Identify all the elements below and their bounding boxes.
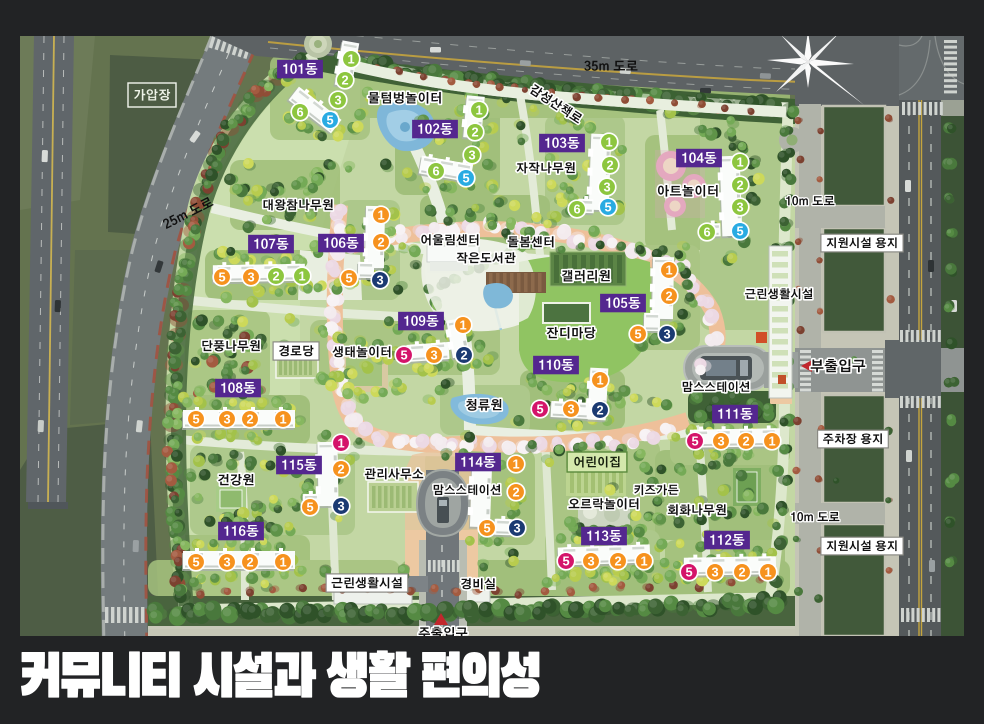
svg-text:3: 3 bbox=[513, 520, 520, 535]
svg-text:3: 3 bbox=[376, 272, 383, 287]
svg-text:5: 5 bbox=[536, 401, 543, 416]
svg-text:3: 3 bbox=[247, 269, 254, 284]
svg-text:2: 2 bbox=[272, 268, 279, 283]
svg-text:5: 5 bbox=[604, 199, 611, 214]
svg-text:2: 2 bbox=[606, 157, 613, 172]
svg-text:3: 3 bbox=[337, 498, 344, 513]
svg-text:5: 5 bbox=[562, 553, 569, 568]
svg-text:5: 5 bbox=[691, 433, 698, 448]
svg-text:5: 5 bbox=[462, 170, 469, 185]
svg-text:3: 3 bbox=[663, 326, 670, 341]
svg-text:1: 1 bbox=[736, 154, 743, 169]
svg-text:2: 2 bbox=[736, 177, 743, 192]
svg-text:2: 2 bbox=[665, 288, 672, 303]
svg-text:2: 2 bbox=[246, 554, 253, 569]
svg-text:2: 2 bbox=[341, 72, 348, 87]
svg-text:3: 3 bbox=[223, 411, 230, 426]
svg-text:1: 1 bbox=[665, 262, 672, 277]
svg-text:6: 6 bbox=[573, 201, 580, 216]
svg-text:5: 5 bbox=[736, 223, 743, 238]
svg-text:2: 2 bbox=[512, 484, 519, 499]
svg-text:3: 3 bbox=[567, 401, 574, 416]
svg-text:5: 5 bbox=[345, 270, 352, 285]
svg-text:1: 1 bbox=[279, 411, 286, 426]
svg-text:5: 5 bbox=[192, 411, 199, 426]
svg-text:2: 2 bbox=[377, 234, 384, 249]
svg-text:2: 2 bbox=[471, 124, 478, 139]
svg-text:3: 3 bbox=[603, 179, 610, 194]
svg-text:1: 1 bbox=[605, 134, 612, 149]
svg-text:1: 1 bbox=[377, 207, 384, 222]
svg-text:1: 1 bbox=[459, 317, 466, 332]
svg-text:5: 5 bbox=[685, 564, 692, 579]
svg-text:2: 2 bbox=[738, 564, 745, 579]
svg-text:5: 5 bbox=[326, 112, 333, 127]
svg-text:3: 3 bbox=[717, 433, 724, 448]
svg-text:2: 2 bbox=[596, 402, 603, 417]
svg-text:3: 3 bbox=[587, 553, 594, 568]
svg-text:1: 1 bbox=[279, 554, 286, 569]
svg-text:6: 6 bbox=[703, 224, 710, 239]
svg-text:1: 1 bbox=[298, 268, 305, 283]
svg-text:5: 5 bbox=[306, 499, 313, 514]
svg-text:3: 3 bbox=[430, 347, 437, 362]
svg-text:2: 2 bbox=[337, 461, 344, 476]
svg-text:6: 6 bbox=[432, 163, 439, 178]
svg-text:1: 1 bbox=[768, 433, 775, 448]
svg-text:1: 1 bbox=[337, 435, 344, 450]
svg-text:1: 1 bbox=[347, 51, 354, 66]
svg-text:2: 2 bbox=[246, 411, 253, 426]
svg-text:2: 2 bbox=[614, 553, 621, 568]
svg-text:1: 1 bbox=[764, 564, 771, 579]
svg-text:2: 2 bbox=[460, 347, 467, 362]
svg-text:5: 5 bbox=[483, 520, 490, 535]
svg-text:1: 1 bbox=[475, 102, 482, 117]
svg-text:2: 2 bbox=[742, 433, 749, 448]
svg-text:1: 1 bbox=[512, 456, 519, 471]
svg-text:5: 5 bbox=[634, 326, 641, 341]
svg-text:1: 1 bbox=[640, 553, 647, 568]
svg-text:3: 3 bbox=[334, 92, 341, 107]
svg-text:5: 5 bbox=[192, 554, 199, 569]
svg-text:6: 6 bbox=[296, 104, 303, 119]
svg-text:3: 3 bbox=[736, 199, 743, 214]
svg-text:3: 3 bbox=[223, 554, 230, 569]
svg-text:3: 3 bbox=[468, 147, 475, 162]
svg-text:1: 1 bbox=[596, 372, 603, 387]
svg-text:3: 3 bbox=[711, 564, 718, 579]
svg-text:5: 5 bbox=[400, 347, 407, 362]
svg-text:5: 5 bbox=[218, 269, 225, 284]
